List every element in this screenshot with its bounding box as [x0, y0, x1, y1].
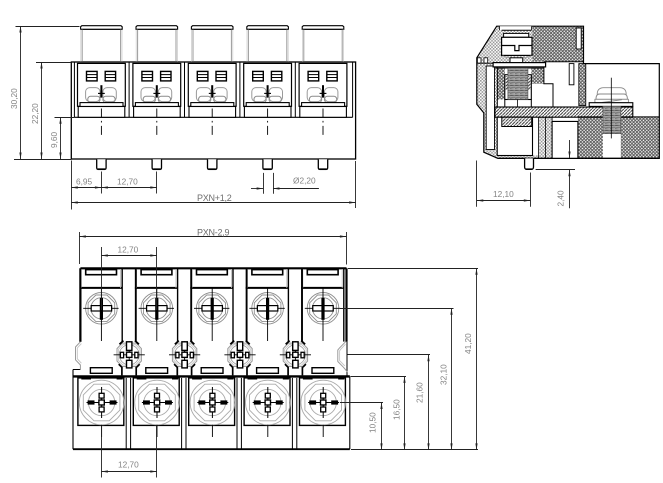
svg-text:PXN-2,9: PXN-2,9 [197, 227, 230, 237]
svg-text:12,10: 12,10 [493, 189, 514, 199]
svg-text:2,40: 2,40 [556, 190, 566, 207]
svg-text:12,70: 12,70 [118, 245, 139, 255]
svg-text:12,70: 12,70 [117, 176, 138, 186]
svg-text:10,50: 10,50 [368, 412, 378, 433]
svg-text:22,20: 22,20 [30, 103, 40, 124]
svg-text:32,10: 32,10 [439, 364, 449, 385]
svg-text:41,20: 41,20 [463, 333, 473, 354]
svg-text:6,95: 6,95 [76, 176, 93, 186]
svg-text:16,50: 16,50 [392, 399, 402, 420]
svg-text:30,20: 30,20 [9, 88, 19, 109]
svg-text:Ø2,20: Ø2,20 [293, 176, 316, 186]
svg-text:12,70: 12,70 [118, 459, 139, 469]
svg-text:21,60: 21,60 [415, 382, 425, 403]
svg-text:9,60: 9,60 [49, 131, 59, 148]
svg-text:PXN+1,2: PXN+1,2 [197, 193, 232, 203]
